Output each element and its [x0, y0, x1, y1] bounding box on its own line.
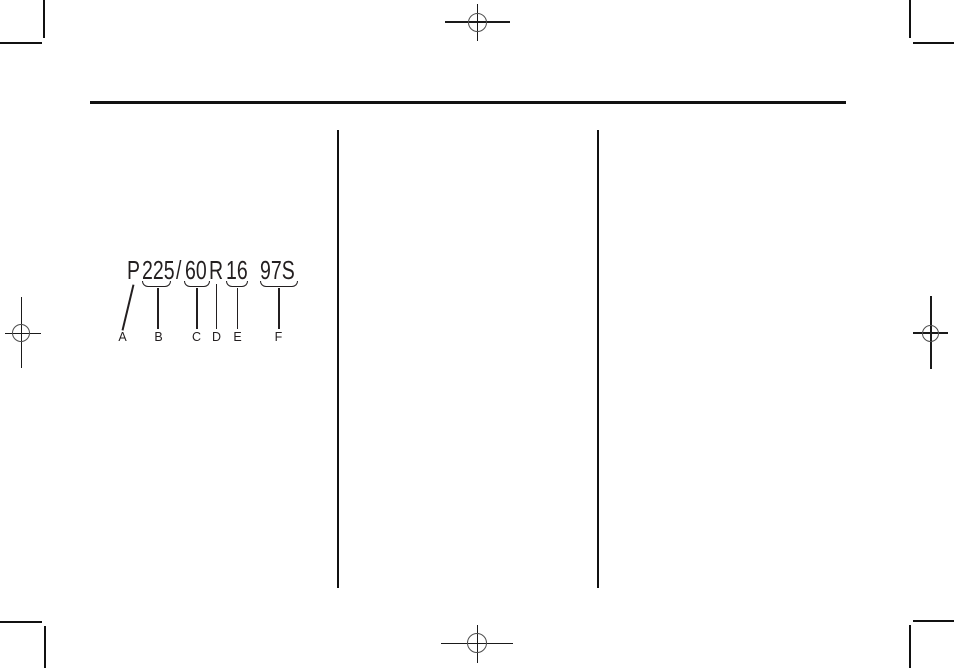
callout-label-a: A — [118, 330, 126, 345]
underbrace-c — [184, 281, 210, 287]
callout-label-f: F — [275, 330, 283, 345]
tire-code-segment-97s: 97S — [260, 257, 295, 283]
tire-code-segment-60: 60 — [185, 257, 207, 283]
crop-mark-top-right-vertical — [909, 0, 911, 38]
underbrace-f — [260, 281, 298, 287]
registration-circle — [468, 13, 487, 32]
crop-mark-top-left-horizontal — [0, 42, 42, 44]
crop-mark-bottom-left-vertical — [44, 626, 46, 668]
leader-line-e — [237, 288, 239, 329]
column-divider-right — [597, 130, 599, 588]
column-divider-left — [337, 130, 339, 588]
registration-circle — [12, 324, 30, 342]
callout-label-c: C — [192, 330, 201, 345]
underbrace-b — [142, 281, 171, 287]
document-page: P 225 / 60 R 16 97S A B C D E F — [0, 0, 954, 668]
tire-code-segment-p: P — [127, 257, 140, 283]
registration-circle — [922, 325, 939, 342]
leader-line-f — [278, 288, 280, 329]
header-rule — [90, 101, 846, 105]
leader-line-c — [196, 288, 198, 329]
tire-code-segment-slash: / — [176, 257, 181, 283]
tire-code-segment-225: 225 — [142, 257, 175, 283]
tire-code-segment-r: R — [209, 257, 223, 283]
underbrace-e — [226, 281, 249, 287]
leader-line-d — [216, 284, 218, 330]
registration-circle — [467, 633, 487, 653]
callout-label-b: B — [154, 330, 162, 345]
leader-line-a — [122, 284, 135, 330]
crop-mark-bottom-right-horizontal — [913, 620, 954, 622]
crop-mark-top-left-vertical — [43, 0, 45, 38]
tire-code-segment-16: 16 — [226, 257, 248, 283]
crop-mark-bottom-left-horizontal — [0, 621, 42, 623]
leader-line-b — [157, 288, 159, 329]
callout-label-d: D — [212, 330, 221, 345]
crop-mark-bottom-right-vertical — [909, 625, 911, 668]
crop-mark-top-right-horizontal — [913, 42, 954, 44]
callout-label-e: E — [233, 330, 241, 345]
